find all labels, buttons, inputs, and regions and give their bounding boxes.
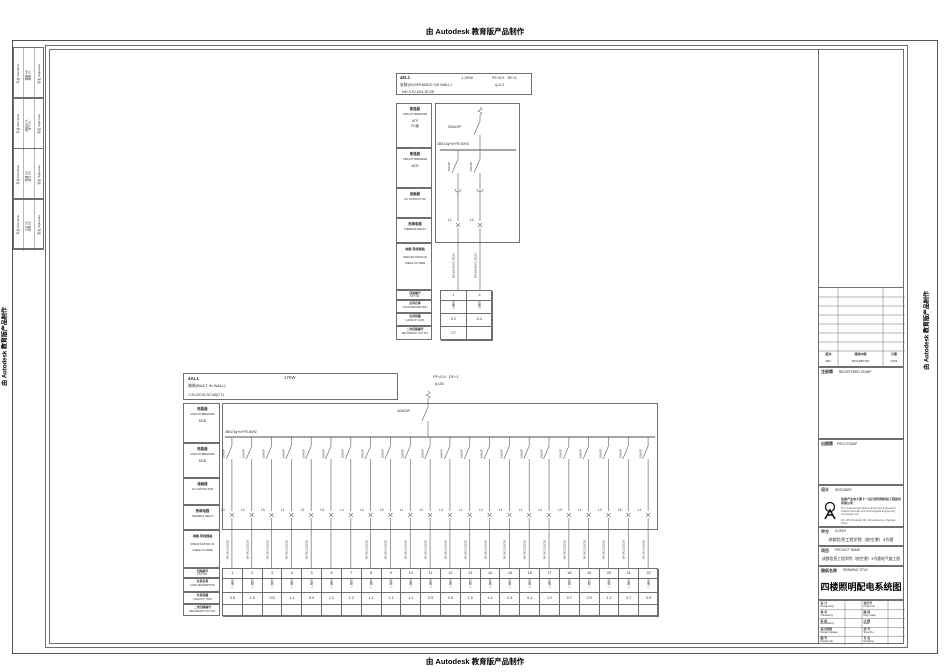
circuit-table-cell: 0.4 <box>467 314 493 327</box>
circuit-table-cell <box>481 605 501 617</box>
panel-4el1: 4EL11.2KWPF=0.9 DF=1安装(SUSPENDED ON WALL… <box>396 73 538 345</box>
circuit-table-cell: 照 明 — <box>481 579 501 593</box>
circuit-table-cell: 0.9 <box>302 593 322 605</box>
branch-phase: L1 <box>340 509 344 513</box>
circuit-table-cell: 0.2 <box>441 314 467 327</box>
circuit-table-cell: 0.9 <box>639 593 659 605</box>
circuit-table-cell: 1.1 <box>382 593 402 605</box>
branch-phase: L2 <box>241 509 245 513</box>
revision-header-zh: 日期 <box>883 353 905 357</box>
circuit-table-cell: 1.2 <box>342 593 362 605</box>
title-block-grid: 设 计Designed by项目号Project No.校 对Checked b… <box>818 600 904 644</box>
circuit-table-cell: 照 明 — <box>520 579 540 593</box>
drawing-title-label-en: DRAWING TITLE <box>843 569 868 573</box>
designer-label-en: DESIGNER <box>835 489 852 493</box>
top-rule <box>12 40 938 41</box>
bottom-rule <box>12 653 938 654</box>
circuit-table-cell <box>441 605 461 617</box>
branch-phase: L1 <box>281 509 285 513</box>
designer-logo-icon <box>822 499 838 523</box>
circuit-table-cell: 10 <box>401 569 421 579</box>
circuit-table-cell: 9 <box>382 569 402 579</box>
circuit-table-cell <box>540 605 560 617</box>
branch-phase: L1 <box>221 509 225 513</box>
drawing-title-value: 四楼照明配电系统图 <box>819 582 903 593</box>
branch-wire-spec: BV-3X2.5,SC20 <box>623 530 626 568</box>
circuit-table-cell: 12 <box>441 569 461 579</box>
branch-phase: L1 <box>400 509 404 513</box>
branch-breaker-rating: 16A/1P <box>599 445 602 461</box>
proj-stamp-label-zh: 出图章 <box>821 442 833 447</box>
circuit-table-cell: 2 <box>243 569 263 579</box>
revision-header-zh: 修改内容 <box>838 353 883 357</box>
autodesk-banner-right: 由 Autodesk 教育版产品制作 <box>922 271 931 391</box>
grid-label-left-en: Checked by <box>821 615 834 618</box>
circuit-table-cell <box>600 605 620 617</box>
drawing-sheet: 由 Autodesk 教育版产品制作 由 Autodesk 教育版产品制作 由 … <box>0 0 950 672</box>
registered-stamp-label-zh: 注册章 <box>821 370 833 375</box>
circuit-table-cell: 0.6 <box>223 593 243 605</box>
branch-wire-spec: BV-3X2.5,SC20 <box>563 530 566 568</box>
project-value: 成都信息工程学院（航空港）4号楼电气施工图 <box>819 557 903 561</box>
branch-phase: L3 <box>618 509 622 513</box>
client-section: 甲方 CLIENT 成都信息工程学院（航空港）4号楼 <box>818 527 904 546</box>
circuit-table-cell <box>421 605 441 617</box>
circuit-table-cell: 1 <box>223 569 243 579</box>
branch-breaker-rating: 16A/1P <box>480 445 483 461</box>
circuit-table-cell: 1.2 <box>540 593 560 605</box>
circuit-table-cell: 照 明 — <box>401 579 421 593</box>
circuit-table-cell: 0.7 <box>560 593 580 605</box>
circuit-table-cell <box>401 605 421 617</box>
branch-wire-spec: BV-3X2.5,SC20 <box>643 530 646 568</box>
branch-phase: L2 <box>470 218 474 222</box>
main-breaker-rating: 25A/3P <box>448 125 461 130</box>
signature-header: 签名 Signature <box>38 151 42 197</box>
grid-label-right-en: Discipline <box>864 641 874 644</box>
designer-company-zh: 信息产业电子第十一设计研究院科技工程股份有限公司 <box>841 498 902 505</box>
branch-breaker-rating: 16A/1P <box>500 445 503 461</box>
circuit-table-cell: 20 <box>600 569 620 579</box>
discipline-header: 专业 Discipline <box>17 202 21 248</box>
branch-breaker-rating: 16A/1P <box>520 445 523 461</box>
revision-header-en: DATE <box>883 360 905 363</box>
circuit-table-cell: 照 明 — <box>441 579 461 593</box>
circuit-table-cell: 照 明 — <box>619 579 639 593</box>
main-breaker-rating: 40A/3P <box>397 409 410 414</box>
branch-wire-spec: BV-3X2.5,SC20 <box>246 530 249 568</box>
signature-header: 签名 Signature <box>38 50 42 96</box>
circuit-table-cell: 1.2 <box>322 593 342 605</box>
branch-phase: L2 <box>301 509 305 513</box>
circuit-table-cell: C7 <box>441 327 467 341</box>
circuit-table-cell: 1.1 <box>282 593 302 605</box>
grid-label-right-en: Scale <box>864 623 870 626</box>
circuit-table-cell <box>342 605 362 617</box>
circuit-table-cell <box>322 605 342 617</box>
circuit-table-cell <box>362 605 382 617</box>
discipline-header: 专业 Discipline <box>17 101 21 147</box>
branch-phase: L1 <box>638 509 642 513</box>
bus-label: 380V,3φ+N+PE,50HZ <box>437 143 469 147</box>
project-label-zh: 项目 <box>821 549 829 554</box>
circuit-table-cell: 21 <box>619 569 639 579</box>
circuit-table-cell: 照 明 — <box>600 579 620 593</box>
grid-label-right-en: Sheet No. <box>864 632 875 635</box>
branch-breaker-rating: 16A/1P <box>619 445 622 461</box>
paper-edge-right <box>937 40 938 653</box>
circuit-table-cell <box>580 605 600 617</box>
branch-breaker-rating: 16A/1P <box>639 445 642 461</box>
branch-breaker-rating: 16A/1P <box>441 445 444 461</box>
signature-entries: 暖通 HV 动力 PD <box>26 153 33 199</box>
circuit-table-cell: 照 明 — <box>560 579 580 593</box>
circuit-table-cell: 照 明 — <box>441 301 467 314</box>
branch-phase: L2 <box>539 509 543 513</box>
circuit-table-cell: 1.1 <box>362 593 382 605</box>
branch-wire-spec: BV-3X2.5,SC20 <box>425 530 428 568</box>
branch-wire-spec: BV-3X2.5,SC20 <box>306 530 309 568</box>
client-label-en: CLIENT <box>835 530 846 534</box>
circuit-table-cell: 照 明 — <box>421 579 441 593</box>
branch-breaker-rating: 16A/1P <box>401 445 404 461</box>
circuit-table-cell: 0.9 <box>580 593 600 605</box>
circuit-table: 12345678910111213141516171819202122照 明 —… <box>222 568 658 616</box>
grid-label-left-en: Reviewed by <box>821 623 835 626</box>
branch-breaker-rating: 16A/1P <box>223 445 226 461</box>
circuit-table-cell: 1.4 <box>481 593 501 605</box>
branch-phase: L3 <box>261 509 265 513</box>
circuit-table-cell <box>223 605 243 617</box>
branch-breaker-rating: 16A/1P <box>381 445 384 461</box>
circuit-table-cell <box>302 605 322 617</box>
signature-entries: 建筑 AR 结构 ST <box>26 52 33 98</box>
circuit-table-cell: 13 <box>461 569 481 579</box>
circuit-table-cell: 7 <box>342 569 362 579</box>
circuit-table-cell: 11 <box>421 569 441 579</box>
revision-header-en: REV. <box>819 360 838 363</box>
drawing-title-section: 图纸名称 DRAWING TITLE 四楼照明配电系统图 <box>818 566 904 600</box>
circuit-table-cell: 1.1 <box>401 593 421 605</box>
signature-entries: 工艺 TE 总图 GE <box>26 203 33 249</box>
branch-wire-spec: BV-3X2.5,SC20 <box>484 530 487 568</box>
circuit-table: 12照 明 —照 明 —0.20.4C7 <box>440 290 492 340</box>
branch-breaker-rating: 16A/1P <box>421 445 424 461</box>
branch-phase: L3 <box>439 509 443 513</box>
title-block: 版次REV.修改内容DESCRIPTION日期DATE 注册章 REGISTER… <box>818 49 904 644</box>
circuit-table-cell: 14 <box>481 569 501 579</box>
circuit-table-cell: 照 明 — <box>467 301 493 314</box>
signature-entries: 给排水 PL 电气 EL <box>26 102 33 148</box>
circuit-table-cell: 照 明 — <box>342 579 362 593</box>
branch-breaker-rating: 16A/1P <box>302 445 305 461</box>
grid-label-left-en: Design Manager <box>821 632 839 635</box>
circuit-table-cell: 15 <box>500 569 520 579</box>
panel-4al1: 4AL117KW暗装(BUILT IN WALL)YJV-5X10,SC40(C… <box>183 373 665 619</box>
designer-label-zh: 设计 <box>821 488 829 493</box>
branch-wire-spec: BV-3X2.5,SC20 <box>444 530 447 568</box>
branch-wire-spec: BV-3X2.5,SC20 <box>583 530 586 568</box>
branch-wire-spec: BV-3X2.5,SC20 <box>365 530 368 568</box>
designer-section: 设计 DESIGNER 信息产业电子第十一设计研究院科技工程股份有限公司 The… <box>818 485 904 527</box>
branch-breaker-rating: 16A/1P <box>461 445 464 461</box>
client-label-zh: 甲方 <box>821 530 829 535</box>
registered-stamp-label-en: REGISTERED STAMP <box>839 371 871 375</box>
branch-breaker-rating: 16A/1P <box>282 445 285 461</box>
autodesk-banner-bottom: 由 Autodesk 教育版产品制作 <box>0 656 950 667</box>
circuit-table-cell: 17 <box>540 569 560 579</box>
grid-label-left-en: Drawing No. <box>821 641 834 644</box>
circuit-table-cell <box>467 327 493 341</box>
signature-group: 专业 Discipline工艺 TE 总图 GE签名 Signature <box>13 199 44 250</box>
circuit-table-cell <box>263 605 283 617</box>
branch-wire-spec: BV-3X2.5,SC20 <box>504 530 507 568</box>
circuit-table-cell: 1.5 <box>461 593 481 605</box>
proj-stamp-section: 出图章 PROJ STAMP <box>818 439 904 485</box>
branch-phase: L3 <box>380 509 384 513</box>
circuit-table-cell <box>560 605 580 617</box>
branch-phase: L1 <box>578 509 582 513</box>
circuit-table-cell: 照 明 — <box>639 579 659 593</box>
circuit-table-cell: 照 明 — <box>461 579 481 593</box>
branch-phase: L3 <box>558 509 562 513</box>
branch-phase: L2 <box>420 509 424 513</box>
branch-breaker-rating: 16A/1P <box>560 445 563 461</box>
circuit-table-cell <box>500 605 520 617</box>
branch-phase: L2 <box>360 509 364 513</box>
circuit-table-cell: 2 <box>467 291 493 301</box>
circuit-table-cell: 照 明 — <box>322 579 342 593</box>
autodesk-banner-top: 由 Autodesk 教育版产品制作 <box>0 26 950 37</box>
discipline-header: 专业 Discipline <box>17 50 21 96</box>
circuit-table-cell: 22 <box>639 569 659 579</box>
signature-group: 专业 Discipline建筑 AR 结构 ST签名 Signature <box>13 47 44 98</box>
branch-phase: L2 <box>598 509 602 513</box>
signature-strip: 专业 Discipline建筑 AR 结构 ST签名 Signature专业 D… <box>13 47 44 249</box>
branch-wire-spec: BV-3X2.5,SC20 <box>464 530 467 568</box>
circuit-table-cell: 1.5 <box>243 593 263 605</box>
branch-wire-spec: BV-3X2.5,SC20 <box>543 530 546 568</box>
circuit-table-cell: 照 明 — <box>540 579 560 593</box>
revision-header-zh: 版次 <box>819 353 838 357</box>
branch-breaker-rating: 16A/1P <box>262 445 265 461</box>
circuit-table-cell: 0.5 <box>421 593 441 605</box>
grid-label-right-en: Dwg. Stage <box>864 615 876 618</box>
circuit-table-cell: 6 <box>322 569 342 579</box>
circuit-table-cell <box>461 605 481 617</box>
circuit-table-cell: 照 明 — <box>302 579 322 593</box>
discipline-header: 专业 Discipline <box>17 151 21 197</box>
branch-breaker-rating: 16A/1P <box>322 445 325 461</box>
circuit-table-cell: 4 <box>282 569 302 579</box>
branch-phase: L1 <box>459 509 463 513</box>
circuit-table-cell: 0.8 <box>263 593 283 605</box>
circuit-table-cell: 照 明 — <box>580 579 600 593</box>
circuit-table-cell: 1.2 <box>600 593 620 605</box>
grid-label-left-en: Designed by <box>821 606 834 609</box>
branch-wire-spec: BV-3X2.5,SC20 <box>266 530 269 568</box>
circuit-table-cell: 19 <box>580 569 600 579</box>
branch-breaker-rating: 16A/1P <box>243 445 246 461</box>
branch-wire-spec: BV-3X2.5,SC20 <box>603 530 606 568</box>
circuit-table-cell: 5 <box>302 569 322 579</box>
circuit-table-cell: 照 明 — <box>282 579 302 593</box>
branch-breaker-rating: 16A/1P <box>342 445 345 461</box>
bus-label: 380V,3φ+N+PE,50HZ <box>225 431 257 435</box>
branch-phase: L1 <box>519 509 523 513</box>
circuit-table-cell <box>520 605 540 617</box>
project-label-en: PROJECT NAME <box>835 549 860 553</box>
circuit-table-cell <box>243 605 263 617</box>
circuit-table-cell: 照 明 — <box>500 579 520 593</box>
designer-company-en: The 11 Electronics (Eleventh) Design & R… <box>841 507 902 516</box>
branch-phase: L3 <box>321 509 325 513</box>
circuit-table-cell: 1 <box>441 291 467 301</box>
branch-wire-spec: NH-BV-4X2.5,SC20 <box>452 242 455 288</box>
branch-wire-spec: BV-3X2.5,SC20 <box>226 530 229 568</box>
circuit-table-cell: 3 <box>263 569 283 579</box>
branch-phase: L3 <box>499 509 503 513</box>
proj-stamp-label-en: PROJ STAMP <box>837 443 857 447</box>
grid-label-right-en: Project No. <box>864 606 876 609</box>
branch-breaker-rating: 16A/1P <box>580 445 583 461</box>
circuit-table-cell: 18 <box>560 569 580 579</box>
branch-wire-spec: BV-3X2.5,SC20 <box>385 530 388 568</box>
autodesk-banner-left: 由 Autodesk 教育版产品制作 <box>0 287 9 407</box>
revision-header-en: DESCRIPTION <box>838 360 883 363</box>
revision-table: 版次REV.修改内容DESCRIPTION日期DATE <box>818 287 904 367</box>
drawing-title-label-zh: 图纸名称 <box>821 569 837 574</box>
designer-company-address: NO. 281 Shuanglin Rd. Jinhua Avenue, Che… <box>841 519 902 525</box>
registered-stamp-section: 注册章 REGISTERED STAMP <box>818 367 904 439</box>
circuit-table-cell: 照 明 — <box>223 579 243 593</box>
branch-wire-spec: BV-3X2.5,SC20 <box>405 530 408 568</box>
circuit-table-cell <box>619 605 639 617</box>
signature-header: 签名 Signature <box>38 101 42 147</box>
circuit-table-cell <box>639 605 659 617</box>
branch-wire-spec: NH-BV-4X2.5,SC20 <box>474 242 477 288</box>
circuit-table-cell: 8 <box>362 569 382 579</box>
branch-phase: L2 <box>479 509 483 513</box>
circuit-table-cell: 照 明 — <box>263 579 283 593</box>
branch-breaker-rating: 16A/1P <box>361 445 364 461</box>
signature-header: 签名 Signature <box>38 202 42 248</box>
circuit-table-cell: 16 <box>520 569 540 579</box>
branch-phase: L1 <box>448 218 452 222</box>
branch-breaker-rating: 16A/1P <box>540 445 543 461</box>
circuit-table-cell <box>382 605 402 617</box>
signature-group: 专业 Discipline暖通 HV 动力 PD签名 Signature <box>13 148 44 199</box>
branch-wire-spec: BV-3X2.5,SC20 <box>524 530 527 568</box>
circuit-table-cell: 照 明 — <box>382 579 402 593</box>
signature-group: 专业 Discipline给排水 PL 电气 EL签名 Signature <box>13 98 44 149</box>
circuit-table-cell: 照 明 — <box>362 579 382 593</box>
project-section: 项目 PROJECT NAME 成都信息工程学院（航空港）4号楼电气施工图 <box>818 546 904 566</box>
circuit-table-cell: 0.5 <box>441 593 461 605</box>
circuit-table-cell: 0.4 <box>500 593 520 605</box>
circuit-table-cell: 0.7 <box>619 593 639 605</box>
circuit-table-cell: 0.4 <box>520 593 540 605</box>
branch-breaker-rating: 16A/1P <box>448 157 452 175</box>
circuit-table-cell: 照 明 — <box>243 579 263 593</box>
branch-breaker-rating: 16A/1P <box>470 157 474 175</box>
circuit-table-cell <box>282 605 302 617</box>
branch-wire-spec: BV-3X2.5,SC20 <box>286 530 289 568</box>
client-value: 成都信息工程学院（航空港）4号楼 <box>819 538 903 543</box>
